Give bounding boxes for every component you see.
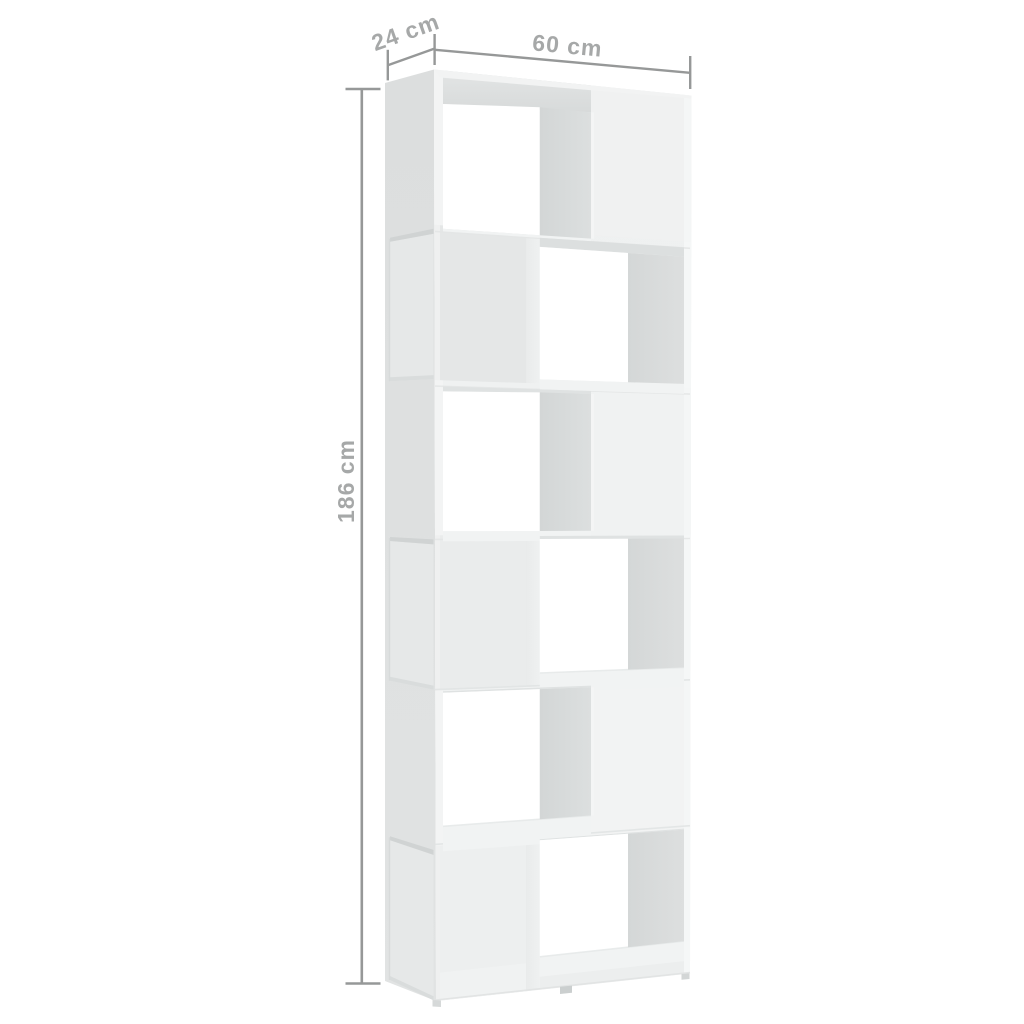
svg-text:186 cm: 186 cm: [333, 439, 359, 523]
